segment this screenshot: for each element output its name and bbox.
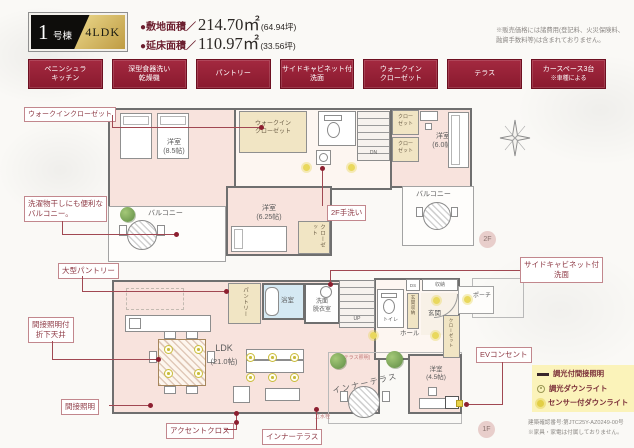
f2-room625-label: 洋室(6.25帖): [240, 204, 298, 222]
building-badge-inner: 1 号棟 4LDK: [31, 15, 125, 49]
toilet-icon: [381, 293, 397, 298]
f2-closet-b: クローゼット: [392, 137, 419, 162]
leader-dot: [234, 420, 239, 425]
layout-type: 4LDK: [85, 25, 120, 40]
sensor-downlight-icon: [432, 332, 439, 339]
floor1-badge: 1F: [478, 421, 495, 438]
sensor-downlight-icon: [303, 164, 310, 171]
floor-area-tsubo: (33.56坪): [260, 40, 295, 52]
downlight-symbol-icon: [537, 385, 545, 393]
plant-icon: [330, 353, 346, 369]
chair-icon: [164, 331, 176, 339]
leader-dot: [174, 232, 179, 237]
feature-badges-row: ペニンシュラキッチン 深型食器洗い乾燥機 パントリー サイドキャビネット付洗面 …: [28, 59, 606, 89]
chair-icon: [425, 123, 432, 130]
f1-ldk-label: LDK(21.0帖): [200, 342, 248, 367]
downlight-icon: [194, 369, 203, 378]
leader-dot: [259, 125, 264, 130]
bed-icon: [448, 112, 469, 168]
callout-2f-washbasin: 2F手洗い: [327, 205, 366, 221]
downlight-icon: [246, 353, 255, 362]
coffee-table-icon: [265, 388, 300, 401]
leader-line: [52, 359, 158, 360]
f1-pantry: パントリー: [228, 283, 261, 324]
chair-icon: [340, 391, 348, 402]
downlight-icon: [290, 353, 299, 362]
floor2-badge: 2F: [479, 231, 496, 248]
leader-line: [322, 169, 323, 206]
side-table-icon: [233, 386, 250, 403]
chair-icon: [186, 386, 198, 394]
floor-area-value: 110.97㎡: [198, 30, 259, 54]
leader-line: [467, 404, 503, 405]
sensor-symbol-icon: [537, 400, 544, 407]
f2-balcony-right-label: バルコニー: [416, 190, 451, 199]
leader-line: [330, 270, 520, 271]
leader-dot: [148, 403, 153, 408]
f2-closet-a: クローゼット: [392, 110, 419, 135]
f1-entrance-storage: 玄関収納: [407, 293, 419, 329]
legend-sensor-downlight: センサー付ダウンライト: [537, 398, 629, 408]
leader-dot: [234, 411, 239, 416]
leader-line: [502, 362, 503, 405]
building-badge: 1 号棟 4LDK: [28, 12, 128, 52]
f2-stairs-dn-label: DN: [357, 150, 390, 157]
bar-symbol-icon: [537, 373, 549, 376]
callout-indirect-light: 間接照明: [61, 399, 99, 415]
callout-accent-cloth: アクセントクロス: [166, 423, 234, 439]
f1-hall-label: ホール: [400, 330, 420, 338]
washbasin-icon: [320, 286, 332, 298]
callout-pantry: 大型パントリー: [58, 263, 119, 279]
building-confirmation-number: 建築確認番号:第JTC25Y-AZ0249-00号: [528, 419, 624, 429]
leader-dot: [224, 289, 229, 294]
sensor-downlight-icon: [370, 332, 377, 339]
chair-icon: [416, 207, 423, 217]
callout-ev-outlet: EVコンセント: [476, 347, 532, 363]
plant-icon: [386, 351, 403, 368]
toilet-icon: [327, 122, 340, 138]
bed-icon: [231, 226, 287, 252]
leader-line: [316, 409, 317, 430]
leader-dot: [328, 282, 333, 287]
callout-side-cabinet: サイドキャビネット付洗面: [520, 257, 603, 283]
f2-room85-label: 洋室(8.5帖): [146, 138, 202, 156]
f2-closet-c: クローゼット: [298, 221, 330, 254]
toilet-icon: [324, 115, 342, 121]
f1-ds: DS: [406, 279, 420, 291]
leader-dot: [320, 166, 325, 171]
building-number: 1: [38, 17, 49, 47]
callout-ceiling: 間接照明付折下天井: [28, 317, 74, 343]
chair-icon: [451, 207, 458, 217]
callout-balcony-note: 洗濯物干しにも便利なバルコニー。: [24, 196, 107, 222]
legend-indirect-light: 調光付間接照明: [537, 369, 629, 379]
lighting-legend: 調光付間接照明 調光ダウンライト センサー付ダウンライト: [532, 365, 634, 412]
leader-line: [112, 127, 262, 128]
footnotes: 建築確認番号:第JTC25Y-AZ0249-00号 ※家具・家電は付属しておりま…: [528, 419, 624, 438]
leader-dot: [156, 357, 161, 362]
f1-porch-label: ポーチ: [473, 293, 491, 301]
washbasin-icon: [319, 153, 328, 162]
leader-line: [109, 405, 150, 406]
chair-icon: [164, 386, 176, 394]
chair-icon: [382, 391, 390, 402]
f2-walkin-closet: ウォークインクローゼット: [239, 111, 307, 153]
building-number-suffix: 号棟: [53, 28, 72, 42]
leader-dot: [314, 407, 319, 412]
downlight-icon: [268, 353, 277, 362]
legend-dimmer-downlight: 調光ダウンライト: [537, 384, 629, 394]
downlight-icon: [246, 373, 255, 382]
sensor-downlight-icon: [348, 164, 355, 171]
flyer-page: 1 号棟 4LDK ●敷地面積／ 214.70㎡ (64.94坪) ●延床面積／…: [0, 0, 634, 448]
leader-line: [82, 291, 226, 292]
feature-car-space: カースペース3台※車種による: [531, 59, 606, 89]
furniture-disclaimer: ※家具・家電は付属しておりません。: [528, 429, 624, 439]
floor-area-label: ●延床面積／: [140, 37, 196, 52]
table-icon: [348, 386, 380, 418]
f1-stairs-up-label: UP: [339, 316, 375, 323]
f1-room45-label: 洋室(4.5帖): [416, 366, 456, 383]
feature-dishwasher: 深型食器洗い乾燥機: [112, 59, 187, 89]
terrace-light-note: (テラス照明): [342, 354, 370, 361]
callout-walkin-closet: ウォークインクローゼット: [24, 107, 116, 122]
leader-line: [52, 341, 53, 360]
feature-terrace: テラス: [447, 59, 522, 89]
leader-dot: [464, 402, 469, 407]
f1-washroom-label: 洗面脱衣室: [306, 299, 338, 315]
chair-icon: [186, 331, 198, 339]
price-disclaimer: ※販売価格には諸費用(登記料、火災保険料、 融資手数料等)は含まれておりません。: [496, 26, 632, 46]
f2-balcony-left-label: バルコニー: [148, 209, 183, 218]
price-disclaimer-line2: 融資手数料等)は含まれておりません。: [496, 36, 632, 46]
bathtub-icon: [265, 287, 279, 316]
price-disclaimer-line1: ※販売価格には諸費用(登記料、火災保険料、: [496, 26, 632, 36]
feature-peninsula-kitchen: ペニンシュラキッチン: [28, 59, 103, 89]
table-icon: [423, 202, 451, 230]
leader-line: [82, 276, 83, 292]
chair-icon: [428, 387, 437, 396]
f1-toilet-label: トイレ: [377, 317, 404, 324]
faucet-label: 立水栓: [315, 413, 330, 420]
floor-area-row: ●延床面積／ 110.97㎡ (33.56坪): [140, 30, 296, 54]
compass-icon: [498, 118, 532, 158]
desk-icon: [419, 398, 447, 409]
f1-storage: 収納: [422, 279, 458, 291]
ev-outlet-icon: [456, 400, 463, 407]
downlight-icon: [164, 345, 173, 354]
feature-side-cabinet: サイドキャビネット付洗面: [280, 59, 355, 89]
stove-icon: [129, 318, 141, 329]
feature-walkin-closet: ウォークインクローゼット: [363, 59, 438, 89]
f1-bath-label: 浴室: [281, 297, 294, 305]
sensor-downlight-icon: [464, 296, 471, 303]
downlight-icon: [268, 373, 277, 382]
desk-icon: [420, 111, 438, 121]
f1-closet: クローゼット: [443, 315, 460, 358]
callout-inner-terrace: インナーテラス: [262, 429, 322, 445]
leader-line: [62, 221, 63, 235]
downlight-icon: [164, 369, 173, 378]
plant-icon: [120, 207, 135, 222]
leader-line: [62, 234, 176, 235]
table-icon: [127, 220, 157, 250]
downlight-icon: [194, 345, 203, 354]
feature-pantry: パントリー: [196, 59, 271, 89]
toilet-icon: [383, 299, 395, 314]
downlight-icon: [290, 373, 299, 382]
sofa-icon: [246, 360, 304, 373]
